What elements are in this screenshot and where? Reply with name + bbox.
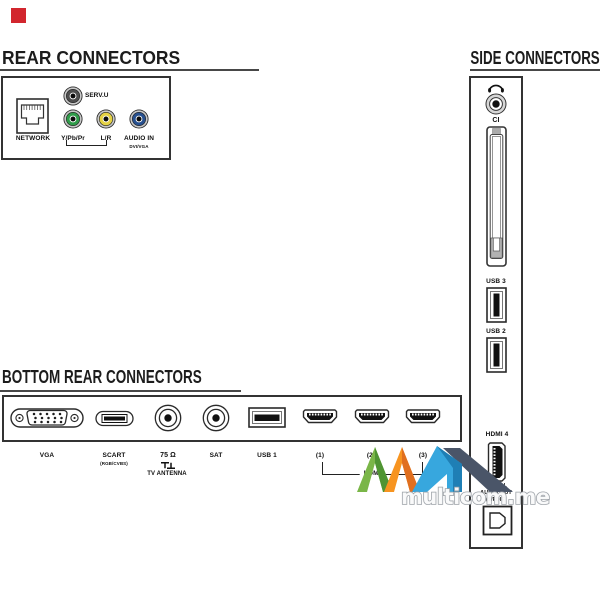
- ci-label: CI: [492, 117, 499, 124]
- antenna-symbol-icon: [160, 461, 176, 470]
- bottom-title-rule: [0, 390, 241, 392]
- hdmi3-port-icon: [404, 407, 442, 427]
- usb2-port-icon: [486, 337, 507, 373]
- usb3-label: USB 3: [486, 278, 506, 285]
- usb2-label: USB 2: [486, 328, 506, 335]
- watermark-text: multicom.me: [401, 485, 550, 509]
- bottom-rear-connectors-title: BOTTOM REAR CONNECTORS: [2, 368, 202, 386]
- vga-label: VGA: [40, 452, 54, 459]
- audio-in-sublabel: DVI/VGA: [129, 143, 148, 150]
- network-rj45-port-icon: [16, 98, 49, 134]
- sat-label: SAT: [210, 452, 223, 459]
- usb1-port-icon: [248, 407, 286, 428]
- audio-in-jack-icon: [129, 109, 149, 129]
- scart-port-icon: [95, 410, 134, 427]
- tv-connector-diagram: REAR CONNECTORS NETWORK SERV.U Y/Pb/Pr L…: [0, 0, 600, 600]
- audio-in-label: AUDIO IN: [124, 135, 154, 142]
- antenna-impedance-label: 75 Ω: [160, 452, 176, 459]
- scart-label: SCART: [103, 452, 126, 459]
- tv-antenna-label: TV ANTENNA: [147, 471, 186, 478]
- vga-port-icon: [10, 405, 84, 431]
- headphone-jack-icon: [485, 93, 507, 115]
- hdmi1-label: (1): [316, 452, 324, 459]
- serv-u-label: SERV.U: [85, 92, 109, 99]
- usb3-port-icon: [486, 287, 507, 323]
- hdmi4-label: HDMI 4: [486, 431, 509, 438]
- sat-coax-port-icon: [202, 404, 230, 432]
- usb1-label: USB 1: [257, 452, 277, 459]
- ci-slot-icon: [486, 126, 507, 267]
- hdmi1-port-icon: [301, 407, 339, 427]
- audio-lr-jack-icon: [96, 109, 116, 129]
- hdmi2-port-icon: [353, 407, 391, 427]
- side-connectors-title: SIDE CONNECTORS: [471, 49, 600, 67]
- component-video-jack-icon: [63, 109, 83, 129]
- rear-title-rule: [0, 69, 259, 71]
- serv-u-jack-icon: [63, 86, 83, 106]
- network-label: NETWORK: [16, 135, 50, 142]
- tv-antenna-coax-port-icon: [154, 404, 182, 432]
- scart-sublabel: (RGB/CVBS): [100, 460, 128, 467]
- red-marker: [11, 8, 26, 23]
- component-group-bracket: [66, 140, 107, 146]
- side-title-rule: [470, 69, 600, 71]
- rear-connectors-title: REAR CONNECTORS: [2, 49, 180, 67]
- headphone-icon: [487, 80, 505, 93]
- optical-audio-out-port-icon: [482, 505, 513, 536]
